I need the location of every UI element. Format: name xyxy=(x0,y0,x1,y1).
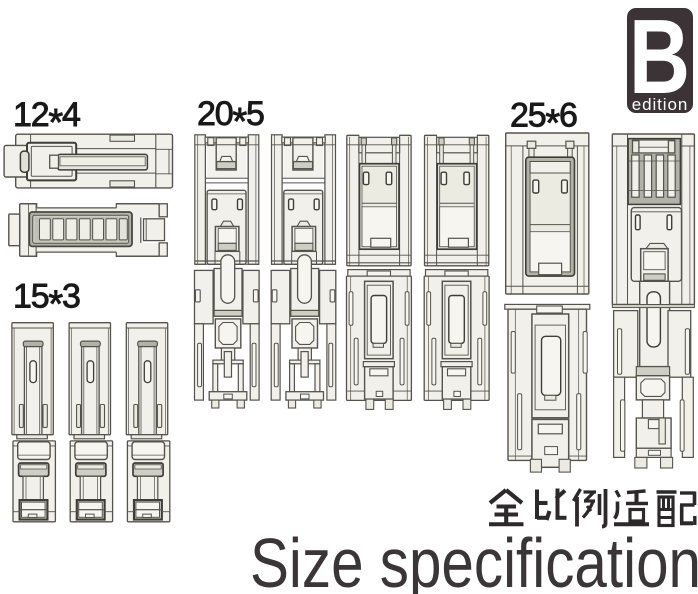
svg-text:Size specification: Size specification xyxy=(250,524,698,594)
svg-text:edition: edition xyxy=(632,95,688,114)
